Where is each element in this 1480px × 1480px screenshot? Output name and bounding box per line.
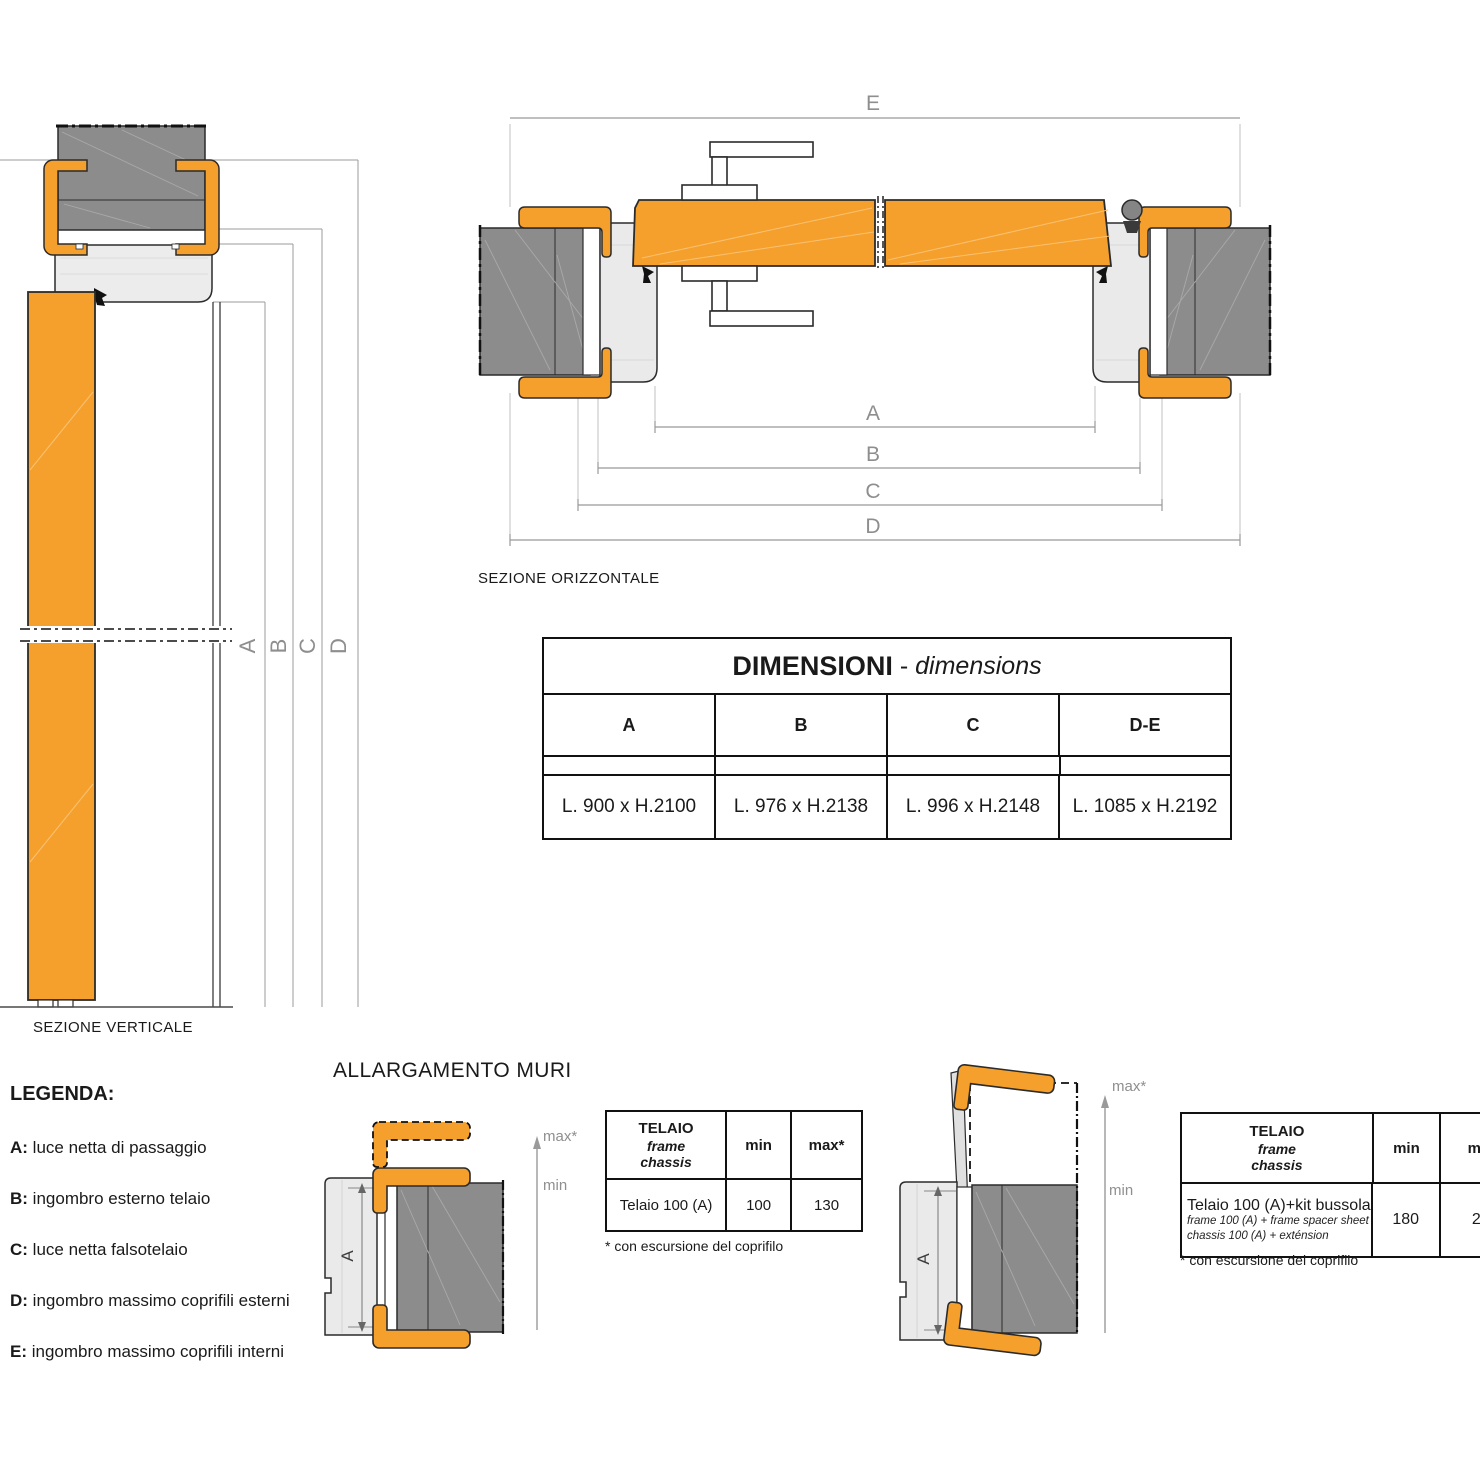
v-break-line <box>18 626 234 643</box>
h-door-leaf <box>633 196 1111 270</box>
h-frame-assembly-right <box>1093 207 1270 398</box>
dimensions-title-main: DIMENSIONI <box>732 651 893 682</box>
v-door-feet <box>38 1000 73 1007</box>
dimensions-col-a: A <box>544 695 716 755</box>
telaio-left-header-min: min <box>727 1112 792 1178</box>
dimensions-table-title: DIMENSIONI - dimensions <box>542 637 1232 693</box>
legend-item-d: D: ingombro massimo coprifili esterni <box>10 1291 310 1311</box>
dimensions-col-de: D-E <box>1060 695 1230 755</box>
h-dim-label-d: D <box>865 515 880 538</box>
dimensions-col-b: B <box>716 695 888 755</box>
telaio-right-header-frame: TELAIO frame chassis <box>1182 1114 1374 1182</box>
detail-left-min-label: min <box>543 1177 567 1194</box>
dr-wall <box>972 1185 1077 1333</box>
dimensions-value-de: L. 1085 x H.2192 <box>1060 776 1230 838</box>
h-dim-label-c: C <box>865 480 880 503</box>
v-wall-block <box>56 126 207 230</box>
legend: LEGENDA: A: luce netta di passaggio B: i… <box>10 1083 310 1393</box>
telaio-right-header-min: min <box>1374 1114 1441 1182</box>
telaio-right-row-max: 200 <box>1441 1184 1480 1256</box>
h-dim-label-e: E <box>866 92 880 115</box>
v-dim-label-c: C <box>295 638 320 654</box>
allargamento-title: ALLARGAMENTO MURI <box>333 1059 572 1083</box>
horizontal-section-caption: SEZIONE ORIZZONTALE <box>478 570 660 587</box>
telaio-left-row-min: 100 <box>727 1180 792 1230</box>
detail-right-min-label: min <box>1109 1182 1133 1199</box>
dr-excursion-arrow <box>1101 1095 1109 1333</box>
telaio-right-header-max: max* <box>1441 1114 1480 1182</box>
legend-item-c: C: luce netta falsotelaio <box>10 1240 310 1260</box>
dimensions-value-c: L. 996 x H.2148 <box>888 776 1060 838</box>
dimensions-col-c: C <box>888 695 1060 755</box>
dimensions-title-sub: dimensions <box>915 652 1041 681</box>
detail-right-drawing: A <box>880 1050 1120 1370</box>
telaio-left-footnote: * con escursione del coprifilo <box>605 1238 783 1254</box>
dl-excursion-arrow <box>533 1136 541 1330</box>
horizontal-section-drawing: E A B C D <box>460 90 1280 590</box>
v-jamb-lines <box>213 302 220 1007</box>
legend-item-e: E: ingombro massimo coprifili interni <box>10 1342 310 1362</box>
detail-left-drawing: A <box>300 1090 560 1360</box>
telaio-left-row-label: Telaio 100 (A) <box>607 1180 727 1230</box>
vertical-section-drawing: A B C D <box>0 0 430 1050</box>
telaio-table-right: TELAIO frame chassis min max* Telaio 100… <box>1180 1112 1480 1258</box>
dimensions-value-b: L. 976 x H.2138 <box>716 776 888 838</box>
telaio-right-footnote: * con escursione del coprifilo <box>1180 1252 1358 1268</box>
dl-coprifilo-dashed <box>373 1122 470 1167</box>
dimensions-table-header-row: A B C D-E <box>542 693 1232 757</box>
dl-letter-a: A <box>338 1250 357 1262</box>
dimensions-table-gap <box>542 757 1232 774</box>
v-dim-label-d: D <box>326 638 351 654</box>
telaio-table-left: TELAIO frame chassis min max* Telaio 100… <box>605 1110 863 1232</box>
telaio-right-row-min: 180 <box>1373 1184 1441 1256</box>
telaio-left-row-max: 130 <box>792 1180 861 1230</box>
spec-sheet: A B C D <box>0 0 1480 1480</box>
v-dim-label-a: A <box>235 638 260 653</box>
dl-wall <box>397 1180 503 1334</box>
vertical-section-caption: SEZIONE VERTICALE <box>33 1019 193 1036</box>
dimensions-table-values-row: L. 900 x H.2100 L. 976 x H.2138 L. 996 x… <box>542 774 1232 840</box>
legend-item-b: B: ingombro esterno telaio <box>10 1189 310 1209</box>
v-dim-label-b: B <box>266 639 291 654</box>
telaio-left-header-max: max* <box>792 1112 861 1178</box>
dr-kit-bussola-zone <box>970 1083 1077 1185</box>
dr-letter-a: A <box>914 1253 933 1265</box>
legend-title: LEGENDA: <box>10 1083 310 1106</box>
dimensions-value-a: L. 900 x H.2100 <box>544 776 716 838</box>
h-dim-label-a: A <box>866 402 880 425</box>
detail-left-max-label: max* <box>543 1128 577 1145</box>
detail-right-max-label: max* <box>1112 1078 1146 1095</box>
h-frame-assembly-left <box>480 207 657 398</box>
telaio-right-row-label: Telaio 100 (A)+kit bussola frame 100 (A)… <box>1182 1184 1373 1256</box>
dimensions-table: DIMENSIONI - dimensions A B C D-E L. 900… <box>542 637 1232 840</box>
v-door-leaf <box>28 292 95 1000</box>
telaio-left-header-frame: TELAIO frame chassis <box>607 1112 727 1178</box>
h-dim-label-b: B <box>866 443 880 466</box>
legend-item-a: A: luce netta di passaggio <box>10 1138 310 1158</box>
